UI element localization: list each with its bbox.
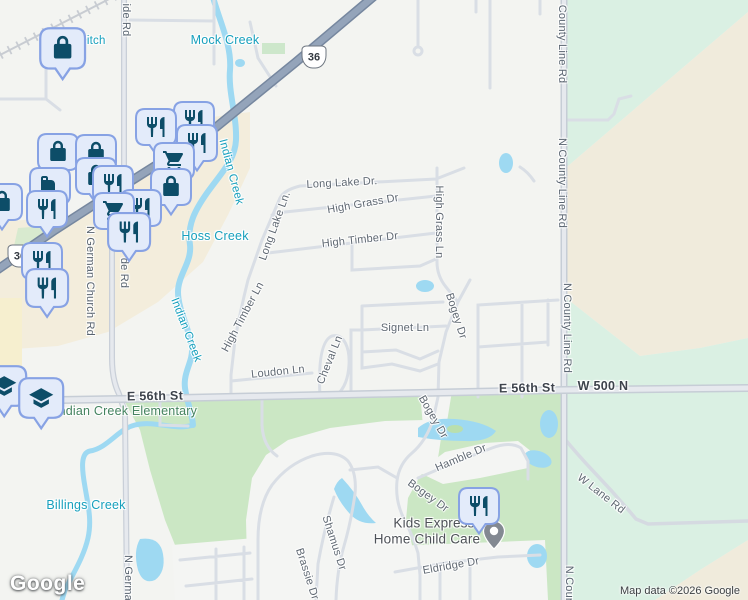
map-attribution: Map data ©2026 Google bbox=[620, 585, 740, 597]
poi-pin-shopping-bag-icon[interactable] bbox=[38, 26, 87, 87]
markers-layer bbox=[0, 0, 748, 600]
google-logo[interactable]: Google bbox=[10, 572, 85, 596]
poi-pin-restaurant-icon[interactable] bbox=[24, 267, 70, 325]
poi-pin-restaurant-icon[interactable] bbox=[25, 189, 69, 244]
poi-pin-shopping-bag-icon[interactable] bbox=[0, 182, 24, 237]
poi-pin-restaurant-icon[interactable] bbox=[457, 486, 501, 541]
map-canvas[interactable]: Ditchide RdMock CreekCounty Line RdN Cou… bbox=[0, 0, 748, 600]
poi-pin-school-icon[interactable] bbox=[17, 376, 65, 436]
poi-pin-restaurant-icon[interactable] bbox=[106, 211, 152, 269]
